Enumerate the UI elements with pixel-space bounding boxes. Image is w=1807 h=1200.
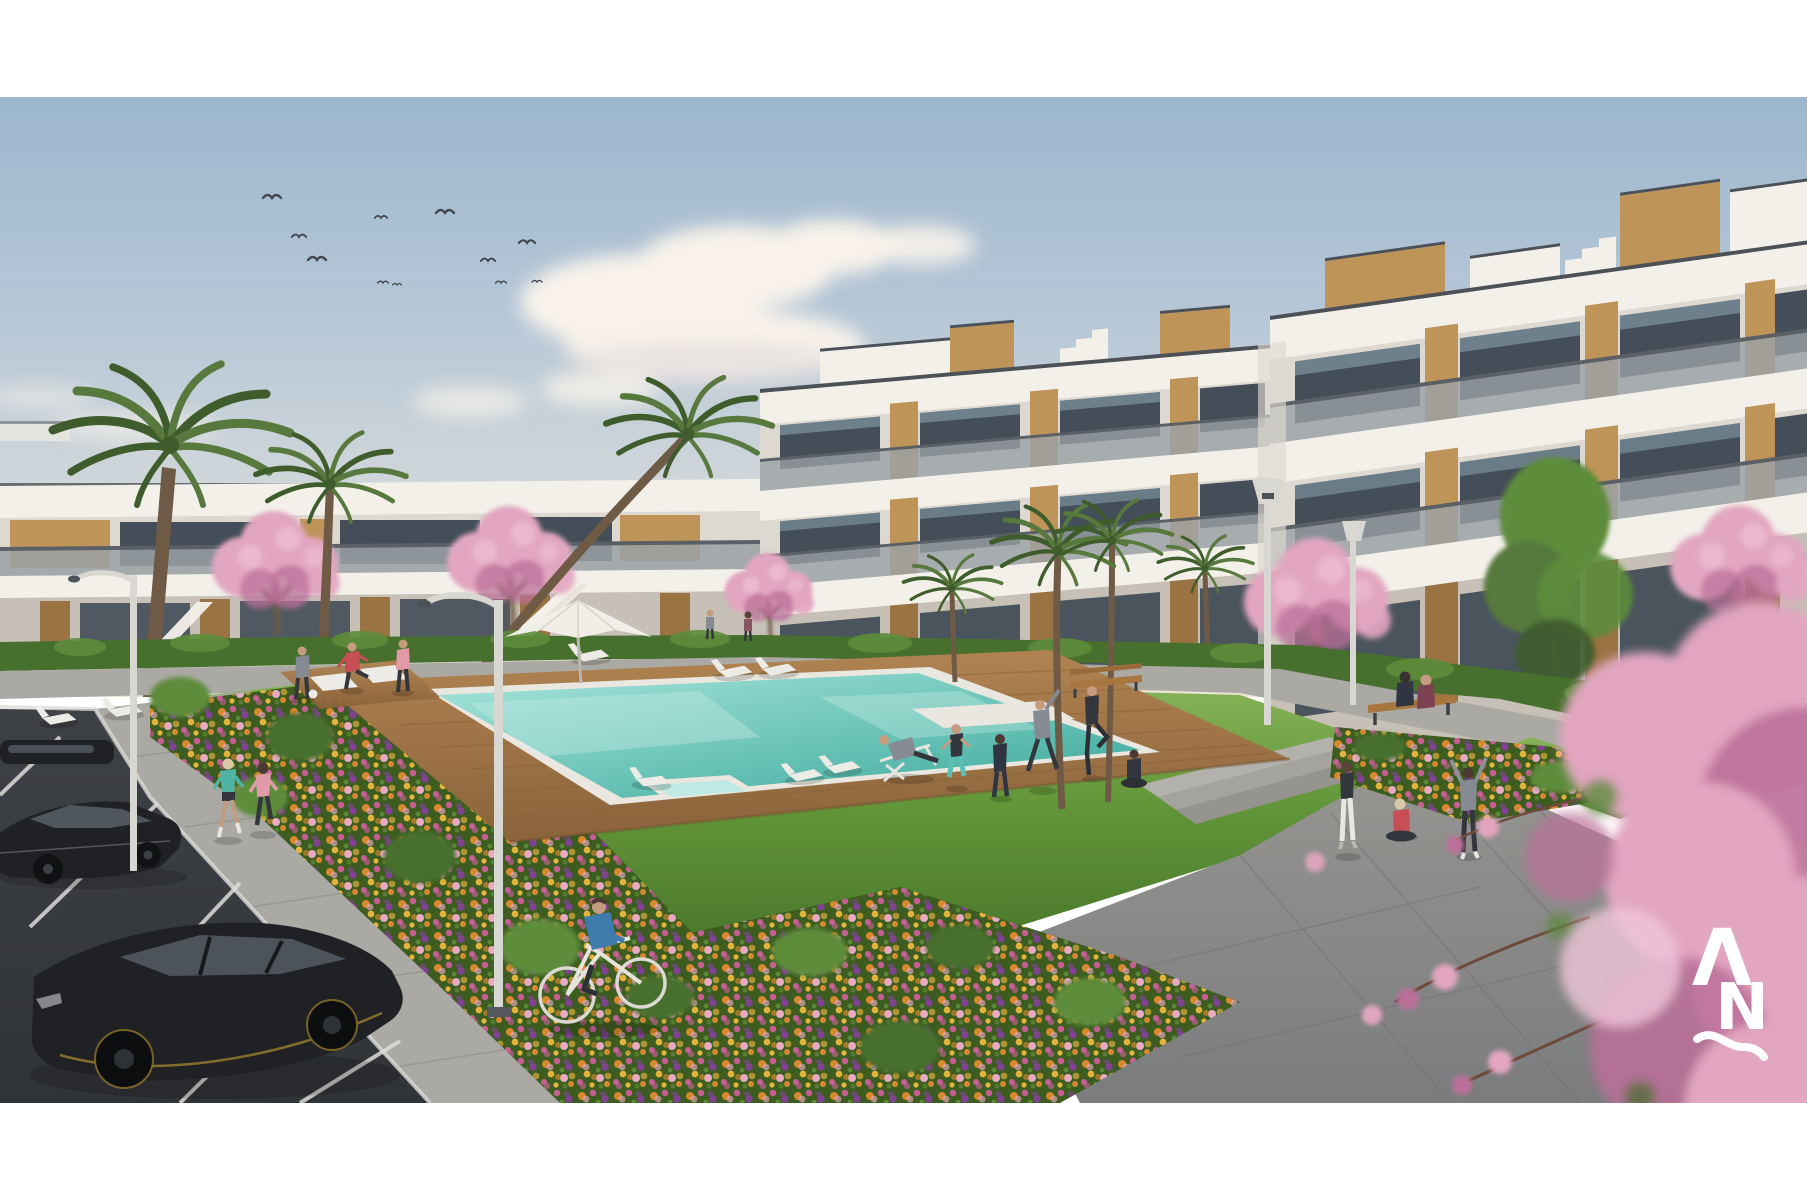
car-distant [0, 740, 114, 764]
ball [309, 690, 318, 699]
rendering: Λ N [0, 97, 1807, 1103]
page: { "meta": { "type": "architectural-rende… [0, 0, 1807, 1200]
logo-letter-n: N [1715, 971, 1769, 1045]
building-joint-shadow [1258, 341, 1286, 697]
